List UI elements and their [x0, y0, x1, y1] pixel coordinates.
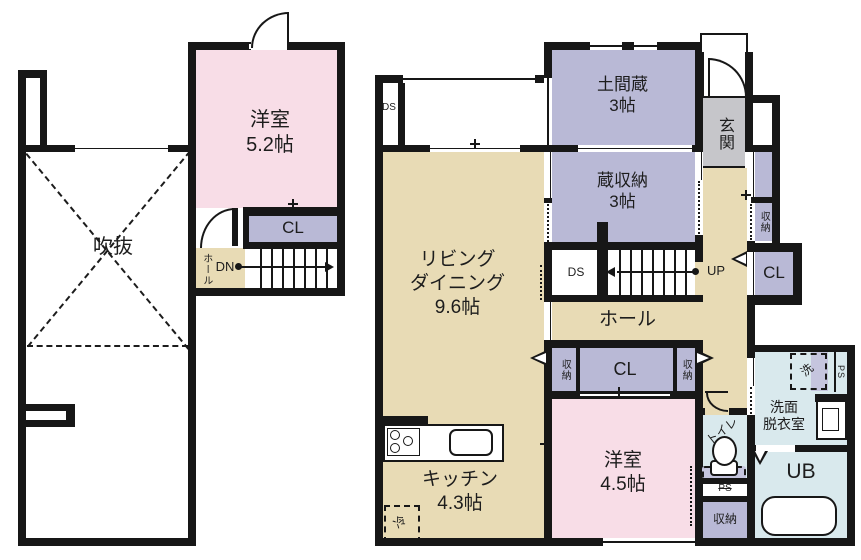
window — [590, 42, 622, 50]
wall-segment — [243, 242, 345, 249]
wall-segment — [622, 42, 634, 50]
floor-plan: 洋室 5.2帖 吹抜 CL ホール DN — [0, 0, 861, 560]
window — [75, 145, 168, 152]
closet-door-line — [580, 394, 670, 396]
wall-segment — [544, 340, 703, 348]
wall-segment — [544, 242, 703, 250]
hall-label-1f: ホール — [585, 305, 670, 335]
wall-segment — [747, 345, 855, 352]
window — [403, 75, 535, 83]
wall-segment — [188, 42, 251, 50]
room-label: 洋室 5.2帖 — [210, 98, 330, 168]
void-bottom-line — [27, 345, 188, 347]
cl-mid-label: CL — [585, 351, 665, 387]
stove-burner — [390, 430, 400, 440]
entrance-porch — [700, 33, 748, 56]
wall-segment — [696, 408, 705, 415]
up-label: UP — [701, 262, 731, 280]
stair-tread — [293, 249, 295, 288]
kitchen-label: キッチン 4.3帖 — [400, 462, 520, 522]
step-marker-inner — [735, 254, 746, 264]
stair-arrow-head — [606, 267, 615, 277]
wall-segment — [188, 42, 196, 145]
wall-segment — [772, 95, 780, 243]
dn-label: DN — [212, 258, 238, 276]
wall-niche-slot — [26, 411, 66, 420]
window — [603, 538, 695, 546]
wall-segment — [196, 288, 345, 296]
ds-label-stair: DS — [558, 262, 594, 282]
stair-arrow — [241, 266, 326, 268]
door-arc-2f-room — [200, 208, 235, 248]
opening — [747, 358, 755, 386]
shuno-row-left-label: 収納 — [553, 349, 575, 391]
wall-segment — [576, 348, 580, 391]
bathtub — [761, 496, 837, 536]
closet-label: CL — [249, 213, 337, 243]
stair-tread — [315, 249, 317, 288]
wall-segment — [747, 295, 802, 305]
opening — [695, 152, 703, 180]
wall-segment — [702, 52, 704, 96]
kura-label: 蔵収納 3帖 — [570, 162, 675, 220]
wall-tick — [614, 387, 624, 397]
wall-segment — [40, 70, 47, 148]
sliding-opening — [544, 152, 552, 198]
stair-arrow — [617, 271, 694, 273]
room-1f-label: 洋室 4.5帖 — [558, 444, 688, 502]
doma-label: 土間蔵 3帖 — [570, 66, 675, 124]
door-leaf — [232, 208, 238, 246]
stove-burner — [390, 443, 400, 453]
wall-segment — [544, 145, 552, 152]
opening-dotted — [698, 181, 700, 234]
wall-segment — [747, 145, 772, 152]
wall-tick — [288, 199, 298, 209]
stair-tread — [271, 249, 273, 288]
wall-segment — [544, 243, 552, 302]
wall-segment — [188, 145, 196, 546]
living-label: リビング ダイニング 9.6帖 — [395, 238, 520, 330]
step-marker-inner — [534, 353, 546, 363]
stove-burner — [403, 436, 413, 446]
shuno-bottom-label: 収納 — [703, 506, 747, 532]
ds-strip-wall — [398, 83, 405, 145]
stair-tread — [282, 249, 284, 288]
ps-toilet-label: PS — [703, 482, 747, 497]
genkan-label: 玄関 — [711, 107, 737, 161]
wall-tick — [540, 439, 550, 449]
hall-label-2f: ホール — [198, 248, 213, 290]
ub-label: UB — [755, 454, 847, 490]
opening-dotted — [690, 466, 692, 526]
entrance-door-arc — [708, 58, 747, 97]
stair-tread — [304, 249, 306, 288]
wall-segment — [383, 416, 428, 424]
opening-dotted — [540, 265, 542, 300]
wall-segment — [597, 222, 608, 250]
shuno-col-label: 収納 — [753, 204, 773, 240]
cl-right-label: CL — [753, 254, 795, 292]
opening-dotted — [750, 204, 752, 240]
wall-segment — [18, 145, 75, 152]
wall-segment — [18, 70, 26, 546]
window — [634, 42, 657, 50]
wall-segment — [337, 42, 345, 296]
wall-segment — [544, 42, 552, 78]
corridor — [703, 168, 747, 415]
shuno-row-right-label: 収納 — [674, 349, 696, 391]
step-marker-inner — [697, 353, 709, 363]
wall-segment — [375, 75, 403, 83]
door-arc-2f-entry — [251, 12, 289, 48]
kitchen-sink — [449, 429, 493, 456]
ds-label-top: DS — [379, 100, 399, 116]
closet-top-right — [755, 152, 772, 197]
stair-arrow-head — [325, 262, 334, 272]
fukinuke-label: 吹抜 — [73, 233, 153, 261]
washbasin-bowl — [822, 408, 839, 431]
wall-segment — [375, 145, 430, 152]
ps-bath-label: PS — [834, 353, 847, 391]
senmen-label: 洗面 脱衣室 — [748, 394, 820, 438]
opening-dotted — [547, 204, 549, 242]
wall-tick — [470, 139, 480, 149]
wall-segment — [18, 538, 196, 546]
sliding-opening — [578, 145, 692, 152]
stair-tread — [260, 249, 262, 288]
wall-segment — [747, 305, 755, 345]
wall-segment — [552, 145, 578, 152]
window — [544, 78, 552, 145]
wall-tick — [741, 190, 751, 200]
opening — [544, 302, 552, 340]
wall-segment — [544, 295, 703, 302]
